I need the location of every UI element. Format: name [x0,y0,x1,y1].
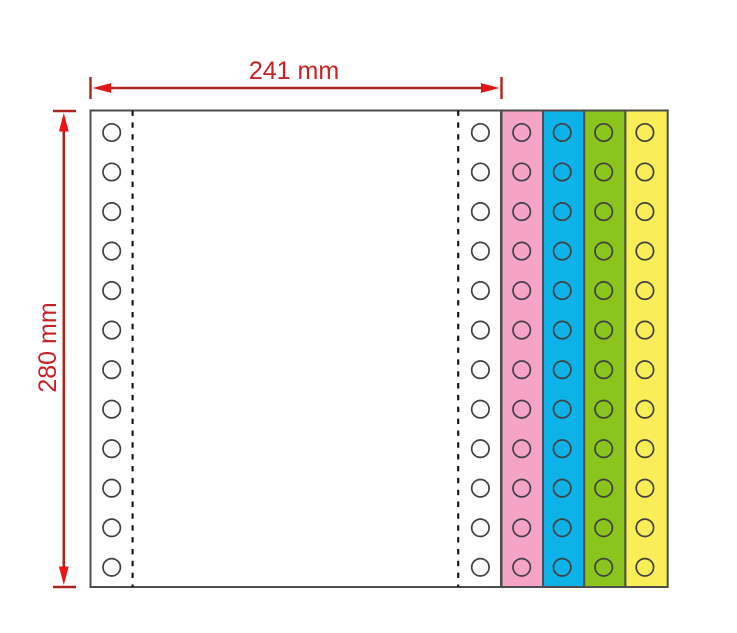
svg-text:241 mm: 241 mm [249,57,339,85]
svg-text:280 mm: 280 mm [34,302,62,392]
